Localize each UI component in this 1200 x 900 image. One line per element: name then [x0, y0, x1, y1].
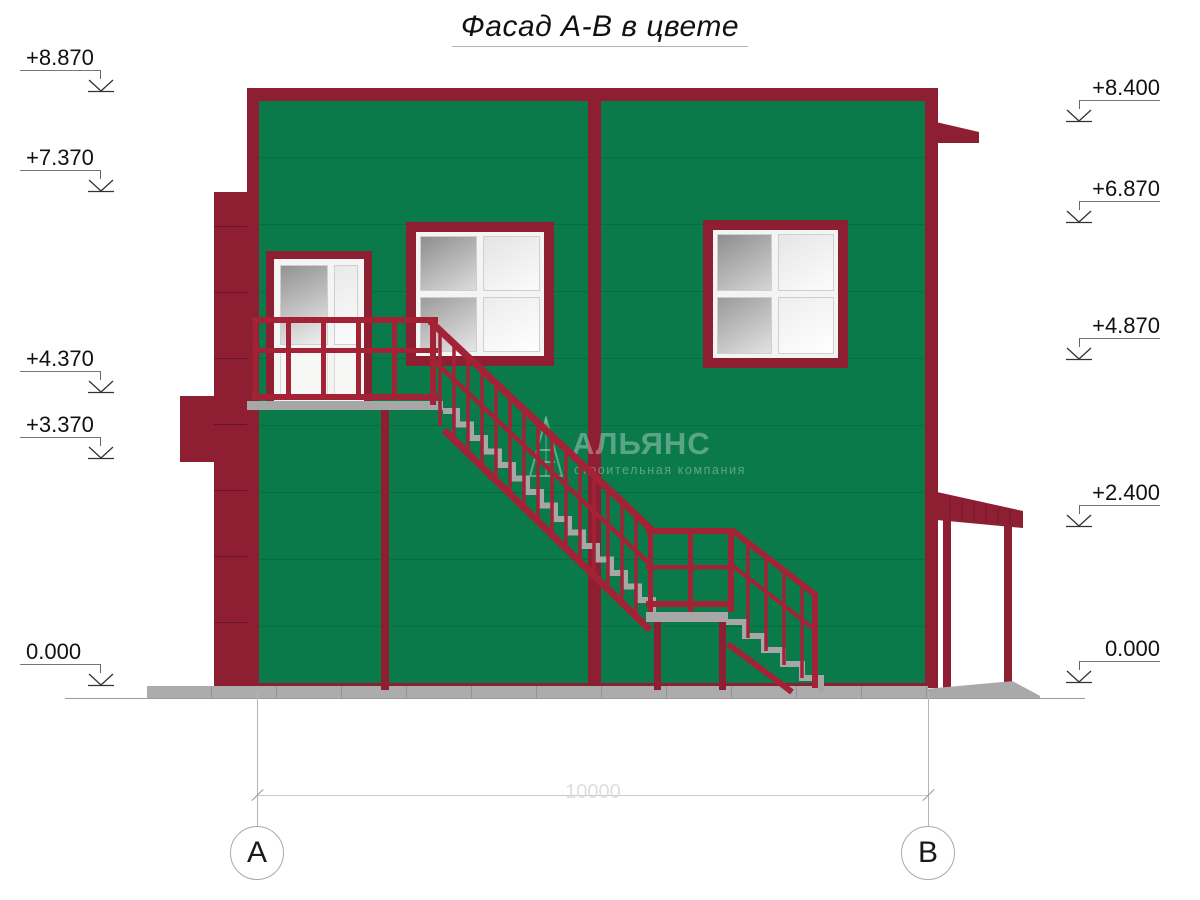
railing-end-post — [812, 593, 818, 688]
level-arrow-icon — [86, 380, 116, 394]
level-arrow-icon — [1064, 109, 1094, 123]
window-pane — [420, 236, 477, 291]
stair-stringer — [444, 430, 650, 630]
elevation-marker-right-0000: 0.000 — [1079, 637, 1160, 670]
elevation-value: +4.370 — [20, 347, 101, 371]
leader-line — [20, 170, 101, 179]
elevation-marker-left-7370: +7.370 — [20, 146, 101, 179]
stair-balusters — [440, 328, 636, 615]
landing-post — [654, 620, 661, 690]
leader-line — [20, 371, 101, 380]
leader-line — [1079, 338, 1160, 347]
axis-label-a: А — [247, 836, 267, 869]
landing-railing — [646, 528, 734, 612]
level-arrow-icon — [86, 179, 116, 193]
elevation-value: 0.000 — [20, 640, 101, 664]
axis-label-b: В — [918, 836, 938, 869]
landing-support-post — [381, 410, 389, 690]
level-arrow-icon — [1064, 347, 1094, 361]
elevation-marker-right-8400: +8.400 — [1079, 76, 1160, 109]
leader-line — [1079, 201, 1160, 210]
elevation-marker-left-8870: +8.870 — [20, 46, 101, 79]
elevation-value: +6.870 — [1079, 177, 1160, 201]
elevation-marker-right-6870: +6.870 — [1079, 177, 1160, 210]
canopy-post-left — [943, 519, 951, 690]
parapet-band — [247, 88, 938, 101]
elevation-value: +8.870 — [20, 46, 101, 70]
elevation-value: +4.870 — [1079, 314, 1160, 338]
balcony-railing — [252, 317, 438, 405]
landing-post — [719, 620, 726, 690]
elevation-value: +2.400 — [1079, 481, 1160, 505]
level-arrow-icon — [86, 673, 116, 687]
elevation-marker-left-4370: +4.370 — [20, 347, 101, 380]
panel-seam — [214, 226, 247, 227]
level-arrow-icon — [86, 79, 116, 93]
axis-circle-a: А — [230, 826, 284, 880]
left-wall-block — [180, 396, 214, 462]
axis-circle-b: В — [901, 826, 955, 880]
stair-handrail — [733, 531, 817, 596]
axis-extension-line-a — [257, 692, 258, 826]
leader-line — [20, 70, 101, 79]
level-arrow-icon — [86, 446, 116, 460]
elevation-value: 0.000 — [1079, 637, 1160, 661]
mid-landing — [646, 528, 734, 690]
elevation-marker-right-4870: +4.870 — [1079, 314, 1160, 347]
title-underline — [452, 46, 748, 47]
level-arrow-icon — [1064, 210, 1094, 224]
lower-stair-railing — [733, 531, 818, 688]
canopy-post-right — [1004, 524, 1012, 688]
axis-extension-line-b — [928, 692, 929, 826]
elevation-value: +8.400 — [1079, 76, 1160, 100]
level-arrow-icon — [1064, 514, 1094, 528]
lower-flight — [726, 622, 821, 692]
porch-canopy — [920, 480, 1050, 540]
balcony-floor — [247, 401, 443, 410]
panel-seam — [214, 292, 247, 293]
external-staircase — [240, 310, 830, 700]
window-pane — [483, 236, 540, 291]
elevation-marker-left-3370: +3.370 — [20, 413, 101, 446]
leader-line — [1079, 100, 1160, 109]
leader-line — [20, 664, 101, 673]
right-edge-trim — [925, 101, 938, 688]
window-pane — [717, 234, 772, 291]
roof-overhang — [937, 120, 979, 143]
leader-line — [1079, 661, 1160, 670]
elevation-value: +7.370 — [20, 146, 101, 170]
leader-line — [1079, 505, 1160, 514]
landing-floor — [646, 612, 728, 622]
level-arrow-icon — [1064, 670, 1094, 684]
elevation-value: +3.370 — [20, 413, 101, 437]
elevation-marker-left-0000: 0.000 — [20, 640, 101, 673]
drawing-title: Фасад А-В в цвете — [0, 10, 1200, 44]
leader-line — [20, 437, 101, 446]
window-pane — [778, 234, 834, 291]
elevation-marker-right-2400: +2.400 — [1079, 481, 1160, 514]
stair-midrail — [430, 357, 652, 566]
dimension-value: 10000 — [538, 781, 648, 804]
